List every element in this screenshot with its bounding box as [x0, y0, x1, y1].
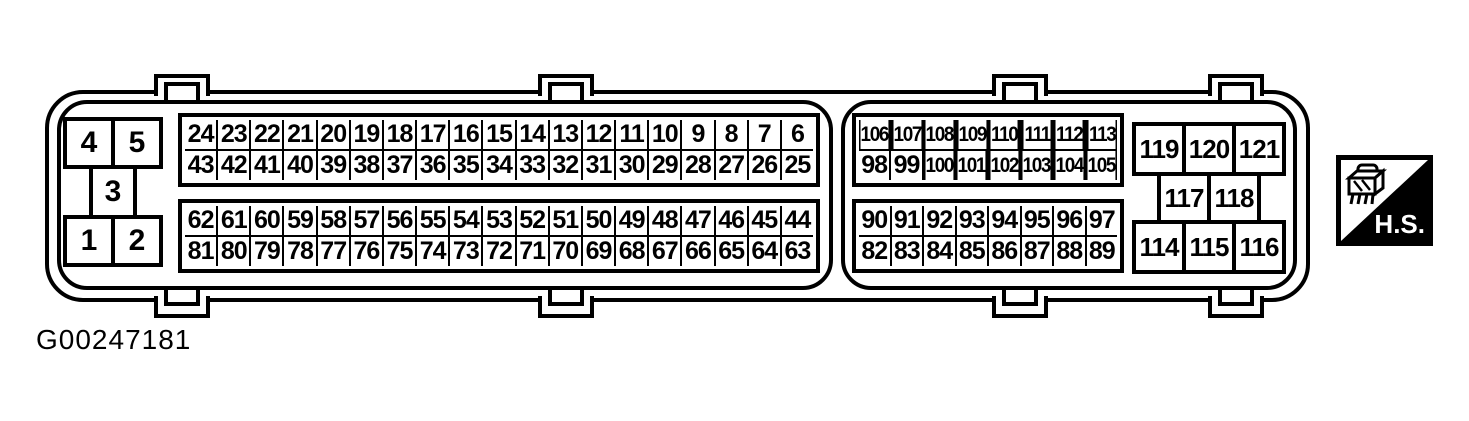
pin-cell: 54	[450, 206, 481, 235]
pin-box: 3	[89, 165, 137, 219]
pin-cell: 16	[450, 120, 481, 149]
pin-cell: 63	[782, 237, 813, 266]
pin-cell: 41	[251, 151, 282, 180]
pin-cell: 71	[517, 237, 548, 266]
pin-cell: 45	[749, 206, 780, 235]
pin-cell: 19	[351, 120, 382, 149]
pin-cell: 29	[649, 151, 680, 180]
pin-cell: 13	[550, 120, 581, 149]
pin-cell: 88	[1054, 237, 1085, 266]
pin-cell: 42	[218, 151, 249, 180]
pin-cell: 109	[958, 120, 985, 149]
pin-box: 114	[1132, 220, 1186, 274]
left-block-bottom-row: 12	[63, 215, 163, 267]
pin-cell: 20	[318, 120, 349, 149]
hs-label: H.S.	[1374, 209, 1425, 240]
pin-cell: 93	[957, 206, 988, 235]
pin-cell: 26	[749, 151, 780, 180]
mounting-tab-top-3-notch	[1002, 82, 1038, 104]
right-block-middle-row: 117118	[1157, 172, 1261, 224]
pin-box: 121	[1232, 122, 1286, 176]
pin-grid-row: 8283848586878889	[859, 237, 1117, 266]
pin-cell: 48	[649, 206, 680, 235]
pin-cell: 24	[185, 120, 216, 149]
pin-cell: 51	[550, 206, 581, 235]
pin-grid-row: 62616059585756555453525150494847464544	[185, 206, 813, 235]
pin-grid-row: 9899100101102103104105	[859, 151, 1117, 180]
ecm-connector-diagram: 45 3 12 24232221201918171615141312111098…	[0, 0, 1469, 421]
left-block-top-row: 45	[63, 117, 163, 169]
pin-cell: 76	[351, 237, 382, 266]
pin-cell: 35	[450, 151, 481, 180]
pin-cell: 50	[583, 206, 614, 235]
pin-box: 4	[63, 117, 115, 169]
pin-cell: 37	[384, 151, 415, 180]
pin-box: 116	[1232, 220, 1286, 274]
hs-badge: H.S.	[1336, 155, 1433, 246]
pin-box: 117	[1157, 172, 1211, 224]
pin-cell: 79	[251, 237, 282, 266]
pin-grid-row: 106107108109110111112113	[859, 120, 1117, 149]
pin-cell: 87	[1022, 237, 1053, 266]
pin-cell: 106	[861, 120, 888, 149]
pin-cell: 90	[859, 206, 890, 235]
mounting-tab-bottom-4-notch	[1218, 286, 1254, 306]
pin-cell: 95	[1022, 206, 1053, 235]
mounting-tab-bottom-2-notch	[548, 286, 584, 306]
pin-grid-row: 43424140393837363534333231302928272625	[185, 151, 813, 180]
pin-box: 1	[63, 215, 115, 267]
pin-cell: 46	[716, 206, 747, 235]
pin-cell: 96	[1054, 206, 1085, 235]
pin-cell: 89	[1087, 237, 1118, 266]
pin-cell: 60	[251, 206, 282, 235]
connector-icon	[1343, 162, 1395, 208]
pin-grid-row: 81807978777675747372717069686766656463	[185, 237, 813, 266]
pin-cell: 64	[749, 237, 780, 266]
pin-cell: 86	[989, 237, 1020, 266]
pin-cell: 104	[1055, 151, 1082, 180]
pin-cell: 7	[749, 120, 780, 149]
mounting-tab-bottom-1-notch	[164, 286, 200, 306]
pin-cell: 10	[649, 120, 680, 149]
pin-cell: 43	[185, 151, 216, 180]
pin-cell: 67	[649, 237, 680, 266]
pin-cell: 100	[925, 151, 952, 180]
pin-grid-bottom-left: 62616059585756555453525150494847464544 8…	[178, 199, 820, 273]
pin-cell: 98	[859, 151, 889, 180]
pin-cell: 34	[483, 151, 514, 180]
pin-cell: 65	[716, 237, 747, 266]
pin-cell: 107	[893, 120, 920, 149]
pin-cell: 9	[682, 120, 713, 149]
pin-cell: 113	[1088, 120, 1115, 149]
pin-cell: 12	[583, 120, 614, 149]
pin-cell: 84	[924, 237, 955, 266]
pin-box: 120	[1182, 122, 1236, 176]
pin-grid-bottom-right: 9091929394959697 8283848586878889	[852, 199, 1124, 273]
pin-box: 5	[111, 117, 163, 169]
pin-cell: 40	[284, 151, 315, 180]
pin-box: 115	[1182, 220, 1236, 274]
pin-cell: 6	[782, 120, 813, 149]
pin-cell: 111	[1023, 120, 1050, 149]
pin-cell: 52	[517, 206, 548, 235]
pin-cell: 70	[550, 237, 581, 266]
pin-cell: 57	[351, 206, 382, 235]
pin-cell: 14	[517, 120, 548, 149]
pin-cell: 21	[284, 120, 315, 149]
pin-cell: 108	[926, 120, 953, 149]
pin-cell: 105	[1088, 151, 1115, 180]
pin-cell: 44	[782, 206, 813, 235]
pin-box: 2	[111, 215, 163, 267]
pin-cell: 28	[682, 151, 713, 180]
pin-cell: 110	[991, 120, 1018, 149]
pin-cell: 82	[859, 237, 890, 266]
mounting-tab-bottom-3-notch	[1002, 286, 1038, 306]
pin-cell: 58	[318, 206, 349, 235]
pin-cell: 85	[957, 237, 988, 266]
pin-box: 119	[1132, 122, 1186, 176]
pin-cell: 69	[583, 237, 614, 266]
pin-cell: 36	[417, 151, 448, 180]
pin-cell: 72	[483, 237, 514, 266]
pin-cell: 112	[1056, 120, 1083, 149]
pin-cell: 77	[318, 237, 349, 266]
pin-cell: 103	[1023, 151, 1050, 180]
pin-grid-top-left: 2423222120191817161514131211109876 43424…	[178, 113, 820, 187]
pin-cell: 47	[682, 206, 713, 235]
mounting-tab-top-1-notch	[164, 82, 200, 104]
pin-cell: 78	[284, 237, 315, 266]
pin-cell: 23	[218, 120, 249, 149]
pin-grid-row: 9091929394959697	[859, 206, 1117, 235]
pin-cell: 30	[616, 151, 647, 180]
pin-cell: 80	[218, 237, 249, 266]
pin-cell: 101	[958, 151, 985, 180]
pin-cell: 59	[284, 206, 315, 235]
pin-cell: 61	[218, 206, 249, 235]
pin-cell: 56	[384, 206, 415, 235]
pin-cell: 73	[450, 237, 481, 266]
pin-cell: 32	[550, 151, 581, 180]
pin-cell: 11	[616, 120, 647, 149]
pin-cell: 8	[716, 120, 747, 149]
pin-cell: 39	[318, 151, 349, 180]
right-block-top-row: 119120121	[1132, 122, 1286, 176]
pin-cell: 33	[517, 151, 548, 180]
right-block-bottom-row: 114115116	[1132, 220, 1286, 274]
pin-cell: 74	[417, 237, 448, 266]
pin-cell: 53	[483, 206, 514, 235]
pin-grid-top-right: 106107108109110111112113 989910010110210…	[852, 113, 1124, 187]
pin-cell: 38	[351, 151, 382, 180]
pin-cell: 83	[892, 237, 923, 266]
pin-cell: 18	[384, 120, 415, 149]
pin-cell: 22	[251, 120, 282, 149]
pin-cell: 15	[483, 120, 514, 149]
pin-grid-row: 2423222120191817161514131211109876	[185, 120, 813, 149]
pin-cell: 94	[989, 206, 1020, 235]
pin-cell: 97	[1087, 206, 1118, 235]
pin-cell: 91	[892, 206, 923, 235]
pin-cell: 31	[583, 151, 614, 180]
pin-cell: 17	[417, 120, 448, 149]
pin-cell: 81	[185, 237, 216, 266]
mounting-tab-top-2-notch	[548, 82, 584, 104]
pin-cell: 49	[616, 206, 647, 235]
pin-cell: 55	[417, 206, 448, 235]
pin-box: 118	[1207, 172, 1261, 224]
pin-cell: 27	[716, 151, 747, 180]
pin-cell: 102	[990, 151, 1017, 180]
mounting-tab-top-4-notch	[1218, 82, 1254, 104]
figure-id: G00247181	[36, 324, 191, 356]
pin-cell: 66	[682, 237, 713, 266]
pin-cell: 62	[185, 206, 216, 235]
pin-cell: 75	[384, 237, 415, 266]
pin-cell: 92	[924, 206, 955, 235]
left-block-middle-row: 3	[89, 165, 137, 219]
pin-cell: 68	[616, 237, 647, 266]
pin-cell: 25	[782, 151, 813, 180]
pin-cell: 99	[891, 151, 921, 180]
